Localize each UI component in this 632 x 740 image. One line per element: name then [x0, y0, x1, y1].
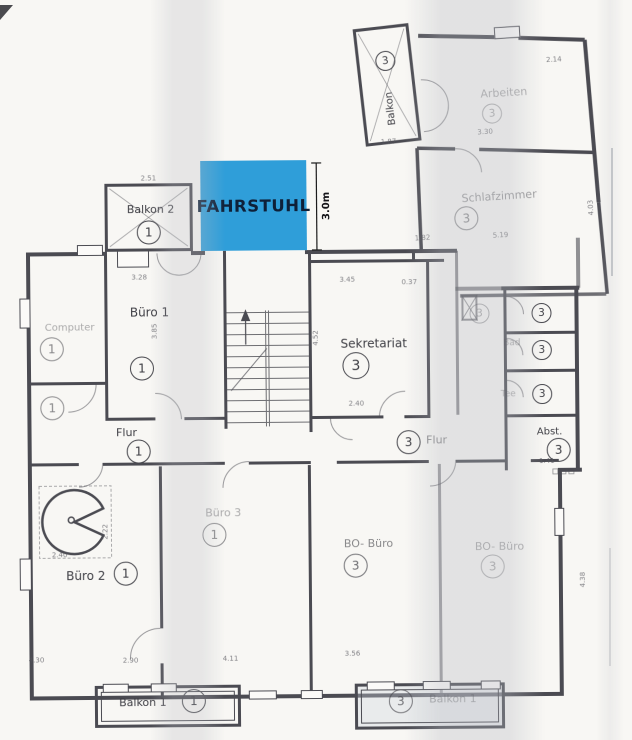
unit-badge: 3 — [469, 303, 489, 323]
unit-badge: 1 — [127, 439, 151, 463]
elevator-label: FAHRSTUHL — [196, 196, 310, 216]
unit-number: 1 — [190, 694, 198, 708]
unit-number: 1 — [48, 342, 56, 356]
window-marker — [494, 26, 521, 40]
unit-badge: 1 — [40, 337, 64, 361]
unit-badge: 3 — [344, 554, 368, 578]
dimension: 4.03 — [586, 200, 595, 216]
unit-number: 3 — [397, 694, 405, 708]
unit-badge: 1 — [40, 396, 64, 420]
room-label-buero1: Büro 1 — [130, 305, 169, 319]
dimension: 2.40 — [52, 551, 68, 559]
room-label-balkon1: Balkon 1 — [119, 696, 167, 709]
unit-badge: 1 — [114, 562, 138, 586]
unit-badge: 1 — [137, 220, 161, 244]
unit-number: 3 — [351, 358, 360, 374]
unit-number: 3 — [555, 443, 563, 457]
dimension: 4.38 — [579, 572, 587, 588]
unit-number: 1 — [122, 567, 130, 581]
unit-badge: 1 — [182, 689, 206, 713]
dimension: 2.51 — [140, 174, 156, 182]
floorplan: 3 Balkon Arbeiten 3 Schlafzimmer 3 2.14 … — [0, 0, 632, 740]
unit-badge: 3 — [342, 352, 369, 379]
unit-number: 3 — [489, 559, 497, 573]
unit-number: 3 — [488, 107, 495, 119]
unit-number: 3 — [381, 55, 389, 68]
room-label-bad3: Bad — [503, 338, 520, 348]
dimension: 2.14 — [546, 55, 562, 64]
dimension: 1.82 — [414, 234, 430, 243]
unit-badge: 3 — [532, 384, 552, 404]
unit-number: 3 — [352, 559, 360, 573]
elevator-annotation: FAHRSTUHL — [200, 160, 307, 251]
scan-corner-mark — [0, 5, 13, 20]
unit-badge: 3 — [481, 554, 505, 578]
unit-badge: 3 — [397, 430, 421, 454]
unit-badge: 1 — [130, 356, 154, 380]
room-label-bo-buero-1: BO- Büro — [344, 537, 393, 550]
dimension: 2.22 — [101, 524, 109, 540]
dimension: 5.19 — [492, 231, 508, 240]
room-label-sekretariat: Sekretariat — [341, 336, 408, 351]
spiral-feature — [39, 486, 112, 559]
elevator-dimension-text: 3.0m — [321, 192, 332, 220]
stair-treads — [226, 310, 309, 427]
room-label-tee3: Tee — [501, 389, 516, 399]
unit-number: 3 — [538, 344, 545, 356]
unit-badge: 1 — [202, 523, 226, 547]
scanned-floorplan-page: 3 Balkon Arbeiten 3 Schlafzimmer 3 2.14 … — [0, 0, 632, 740]
unit-badge: 3 — [389, 689, 413, 713]
unit-badge: 3 — [532, 340, 552, 360]
room-label-balkon2: Balkon 2 — [127, 203, 175, 216]
unit-number: 3 — [539, 388, 546, 400]
scan-line — [609, 548, 611, 666]
dimension: 4.11 — [223, 655, 239, 663]
room-label-balkon-br: Balkon 1 — [429, 692, 477, 705]
dimension: 4.52 — [312, 330, 320, 346]
dimension: 3.45 — [339, 276, 355, 284]
dimension: 3.85 — [151, 324, 159, 340]
room-label-flur1: Flur — [116, 426, 137, 439]
unit-number: 1 — [145, 225, 153, 239]
unit-number: 3 — [462, 211, 470, 225]
unit-number: 1 — [48, 401, 56, 415]
dimension: 3.28 — [131, 273, 147, 281]
unit-number: 1 — [135, 445, 143, 459]
room-label-buero3: Büro 3 — [205, 506, 241, 519]
dimension: 1.87 — [381, 137, 397, 146]
threshold-squares — [553, 469, 574, 474]
unit-number: 1 — [138, 361, 146, 375]
dimension: 0.37 — [401, 278, 417, 286]
unit-number: 3 — [476, 308, 483, 320]
unit-number: 1 — [211, 528, 219, 542]
wing-group: 3 Balkon Arbeiten 3 Schlafzimmer 3 2.14 … — [351, 7, 619, 317]
room-label-abst: Abst. — [537, 426, 563, 437]
dimension: 3.30 — [477, 128, 493, 137]
dimension: 1.41 — [539, 457, 555, 465]
unit-badge: 3 — [531, 303, 551, 323]
dimension: 4.30 — [29, 656, 45, 664]
dimension: 3.56 — [345, 650, 361, 658]
unit-number: 3 — [405, 435, 413, 449]
scan-line — [611, 148, 613, 276]
scan-layer: 3 Balkon Arbeiten 3 Schlafzimmer 3 2.14 … — [0, 0, 629, 3]
room-label-buero2: Büro 2 — [66, 569, 105, 583]
unit-number: 3 — [538, 307, 545, 319]
dimension: 2.40 — [348, 400, 364, 408]
room-label-flur3: Flur — [426, 433, 447, 446]
room-label-computer: Computer — [45, 322, 95, 333]
room-label-bo-buero-2: BO- Büro — [475, 540, 524, 553]
dimension: 2.90 — [123, 657, 139, 665]
